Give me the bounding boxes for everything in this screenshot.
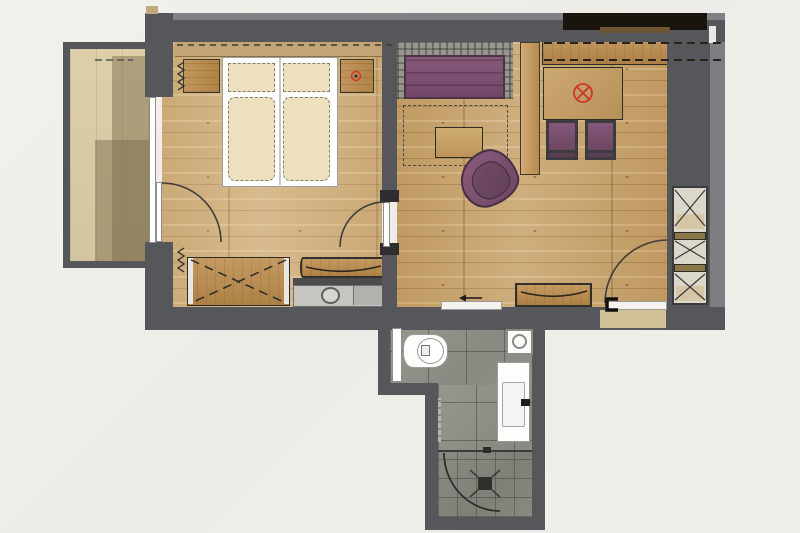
- balcony-glazing: [149, 97, 156, 243]
- bath-wall-left-top: [378, 330, 390, 390]
- minibar-sink: [321, 287, 340, 304]
- balcony-floor: [70, 49, 150, 261]
- technical-unit-circle: [512, 334, 527, 349]
- technical-unit: [506, 329, 533, 355]
- dining-table: [543, 67, 623, 120]
- living-bench: [515, 283, 592, 307]
- bathroom-door-panel: [392, 328, 402, 382]
- stool-2-seat: [588, 123, 613, 150]
- vanity: [497, 362, 530, 442]
- balcony-wall-bottom: [63, 261, 150, 268]
- balcony-wall-left: [63, 42, 70, 268]
- bedroom-door-leaf: [383, 202, 390, 247]
- balcony-wall-top: [63, 42, 150, 49]
- floor-plan: [0, 0, 800, 533]
- armchair-seat: [467, 157, 515, 204]
- left-pier-bottom: [145, 242, 173, 308]
- stool-1: [546, 120, 578, 160]
- balcony-shadow-lower: [95, 140, 150, 261]
- right-wall-outer: [710, 42, 725, 330]
- wardrobe-post-right: [284, 258, 289, 304]
- room-divider-panel: [520, 42, 540, 175]
- bath-wall-right: [532, 330, 545, 530]
- toilet-flush: [421, 345, 430, 356]
- pillow-right: [283, 63, 330, 92]
- mattress-right: [283, 97, 330, 181]
- bed-center-line: [279, 58, 281, 185]
- stool-1-seat: [549, 123, 575, 150]
- door-jamb-upper: [380, 190, 399, 202]
- bedroom-decor-tray: [300, 257, 386, 278]
- niche-shelf: [600, 27, 670, 33]
- bath-wall-left-bottom: [425, 390, 438, 530]
- left-pier-top: [145, 13, 173, 97]
- toilet: [403, 334, 448, 368]
- wardrobe-shelf-1: [674, 232, 706, 240]
- entrance-threshold: [605, 301, 667, 310]
- pillow-left: [228, 63, 275, 92]
- wardrobe-shelf-board-2: [676, 286, 704, 301]
- wardrobe-post-left: [188, 258, 193, 304]
- top-left-trim: [146, 6, 158, 14]
- entry-landing-floor: [600, 310, 666, 328]
- minibar-unit: [293, 285, 388, 307]
- minibar-backsplash: [293, 278, 390, 285]
- partition-wall-upper: [382, 42, 397, 200]
- mattress-left: [228, 97, 275, 181]
- wardrobe-shelf-board-1: [676, 214, 704, 229]
- balcony-door-leaf: [156, 182, 162, 242]
- wall-slit: [709, 26, 716, 43]
- bath-wall-bottom: [425, 517, 545, 530]
- shower-drain: [478, 477, 492, 490]
- bathroom-sliding-door: [441, 301, 502, 310]
- bedroom-wardrobe: [187, 257, 290, 306]
- stool-2: [585, 120, 616, 160]
- stool-2-bar: [588, 153, 613, 157]
- headboard-panel: [175, 42, 393, 57]
- shower-door-handle: [483, 447, 491, 453]
- stool-1-bar: [549, 153, 575, 157]
- nightstand-right: [340, 59, 374, 93]
- built-in-wardrobe: [672, 186, 708, 305]
- sofa-seat: [404, 55, 505, 99]
- nightstand-left: [183, 59, 220, 93]
- faucet: [521, 399, 530, 406]
- double-bed-frame: [222, 57, 338, 187]
- wardrobe-shelf-2: [674, 264, 706, 272]
